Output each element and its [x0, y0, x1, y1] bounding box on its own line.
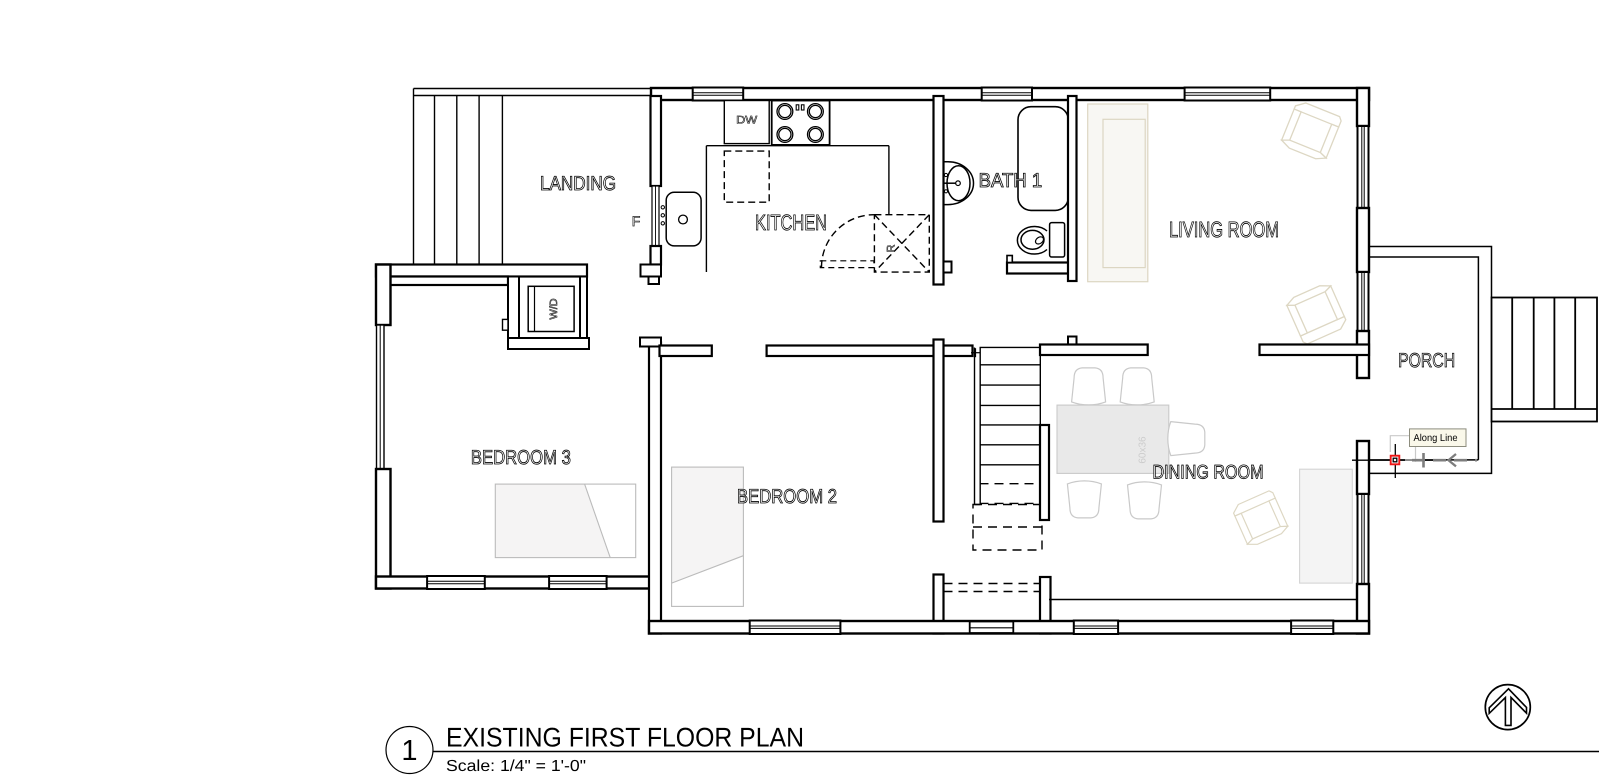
svg-text:W/D: W/D: [548, 298, 560, 319]
svg-text:LIVING ROOM: LIVING ROOM: [1169, 217, 1279, 242]
svg-text:1: 1: [401, 735, 417, 767]
svg-text:F: F: [632, 213, 641, 229]
svg-text:R: R: [886, 244, 898, 252]
svg-text:PORCH: PORCH: [1398, 350, 1455, 372]
svg-text:EXISTING FIRST FLOOR PLAN: EXISTING FIRST FLOOR PLAN: [446, 723, 804, 753]
svg-text:60x36: 60x36: [1138, 436, 1149, 464]
svg-text:BEDROOM 2: BEDROOM 2: [737, 486, 837, 508]
svg-text:BATH 1: BATH 1: [979, 170, 1043, 192]
svg-text:BEDROOM 3: BEDROOM 3: [471, 447, 571, 469]
svg-text:Scale: 1/4" = 1'-0": Scale: 1/4" = 1'-0": [446, 758, 586, 775]
svg-text:DW: DW: [736, 115, 758, 127]
svg-text:DINING ROOM: DINING ROOM: [1153, 462, 1264, 484]
svg-text:KITCHEN: KITCHEN: [755, 210, 827, 235]
svg-text:LANDING: LANDING: [540, 173, 616, 195]
svg-text:Along Line: Along Line: [1414, 433, 1458, 444]
